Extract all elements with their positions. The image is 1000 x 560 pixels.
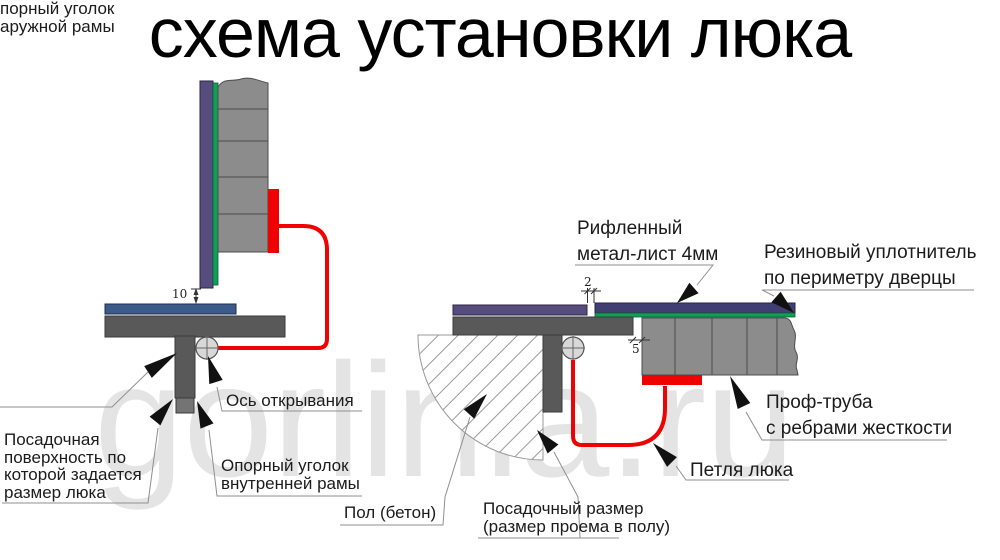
label-outer-corner: порный уголок аружной рамы bbox=[0, 0, 115, 35]
hinge-plate-closed bbox=[642, 375, 702, 385]
hatch-installation-scheme: gorlinia.ru bbox=[0, 0, 1000, 560]
frame-sheet-closed bbox=[453, 305, 587, 315]
label-tube: Проф-труба с ребрами жесткости bbox=[766, 390, 952, 441]
frame-bar-right bbox=[453, 317, 633, 335]
pivot-cross-left bbox=[195, 336, 219, 360]
seal-strip-open bbox=[213, 83, 218, 285]
rib-tube-open bbox=[218, 78, 268, 252]
dim-2-marks bbox=[581, 288, 601, 303]
arrowhead-axis bbox=[208, 356, 223, 384]
hinge-plate-open bbox=[268, 189, 279, 253]
support-angle-blue bbox=[105, 304, 236, 314]
label-sheet: Рифленный метал-лист 4мм bbox=[577, 216, 718, 267]
frame-stem-foot bbox=[176, 398, 194, 413]
label-inner-corner: Опорный уголок внутренней рамы bbox=[221, 457, 360, 492]
frame-bar-left bbox=[105, 316, 285, 337]
arrowhead-sheet bbox=[677, 283, 699, 303]
leader-outer-corner bbox=[0, 372, 148, 407]
arrowhead-tube bbox=[730, 376, 750, 409]
seal-strip-closed bbox=[595, 313, 795, 317]
leader-sheet bbox=[575, 265, 713, 285]
left-diagram bbox=[105, 78, 327, 413]
label-hinge: Петля люка bbox=[690, 458, 793, 484]
right-diagram bbox=[418, 288, 798, 460]
frame-stem-right bbox=[543, 335, 562, 412]
concrete-floor-hatch bbox=[418, 335, 543, 460]
arrowhead-seating-surface bbox=[150, 399, 173, 425]
label-opening: Посадочный размер (размер проема в полу) bbox=[483, 500, 670, 535]
arrowhead-inner-corner bbox=[197, 401, 214, 429]
pivot-cross-right bbox=[561, 336, 585, 360]
dim-10: 10 bbox=[172, 288, 187, 300]
label-seal: Резиновый уплотнитель по периметру дверц… bbox=[764, 240, 976, 291]
door-sheet-open bbox=[200, 81, 213, 288]
dim-2: 2 bbox=[584, 276, 592, 288]
label-axis: Ось открывания bbox=[226, 392, 354, 410]
dim-5: 5 bbox=[632, 343, 640, 355]
label-seating-surface: Посадочная поверхность по которой задает… bbox=[4, 431, 142, 501]
arrowhead-hinge bbox=[653, 443, 677, 467]
rib-tube-closed bbox=[642, 318, 798, 375]
door-sheet-closed bbox=[595, 303, 795, 313]
page-title: схема установки люка bbox=[0, 0, 1000, 70]
label-floor: Пол (бетон) bbox=[344, 504, 436, 522]
frame-stem-left bbox=[175, 336, 195, 398]
arrowhead-outer-corner bbox=[144, 353, 177, 378]
